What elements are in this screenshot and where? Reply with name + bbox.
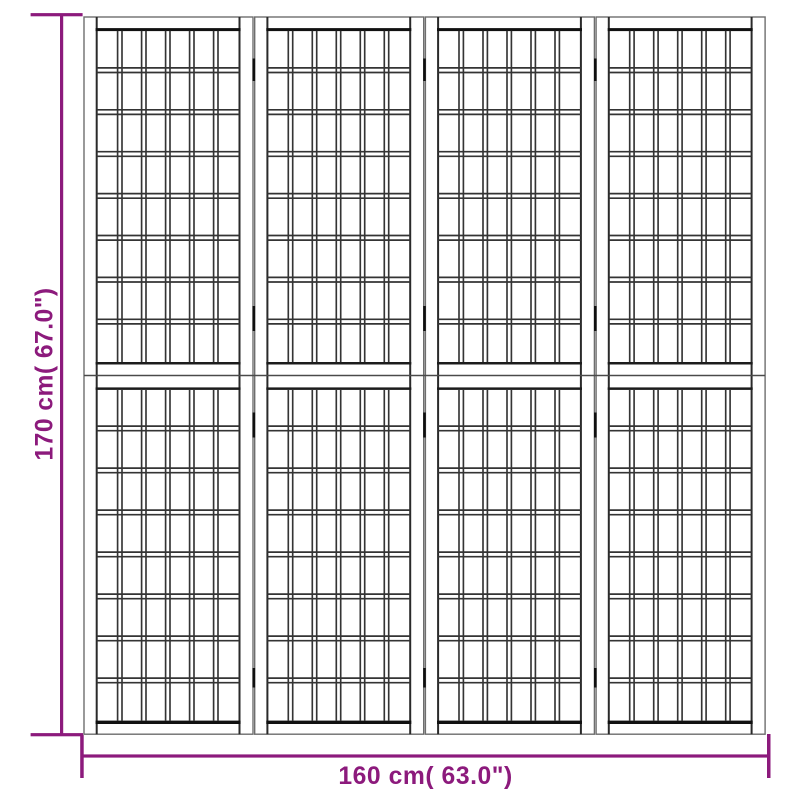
svg-text:170 cm( 67.0"): 170 cm( 67.0") <box>32 287 59 460</box>
svg-text:160 cm( 63.0"): 160 cm( 63.0") <box>338 763 513 790</box>
